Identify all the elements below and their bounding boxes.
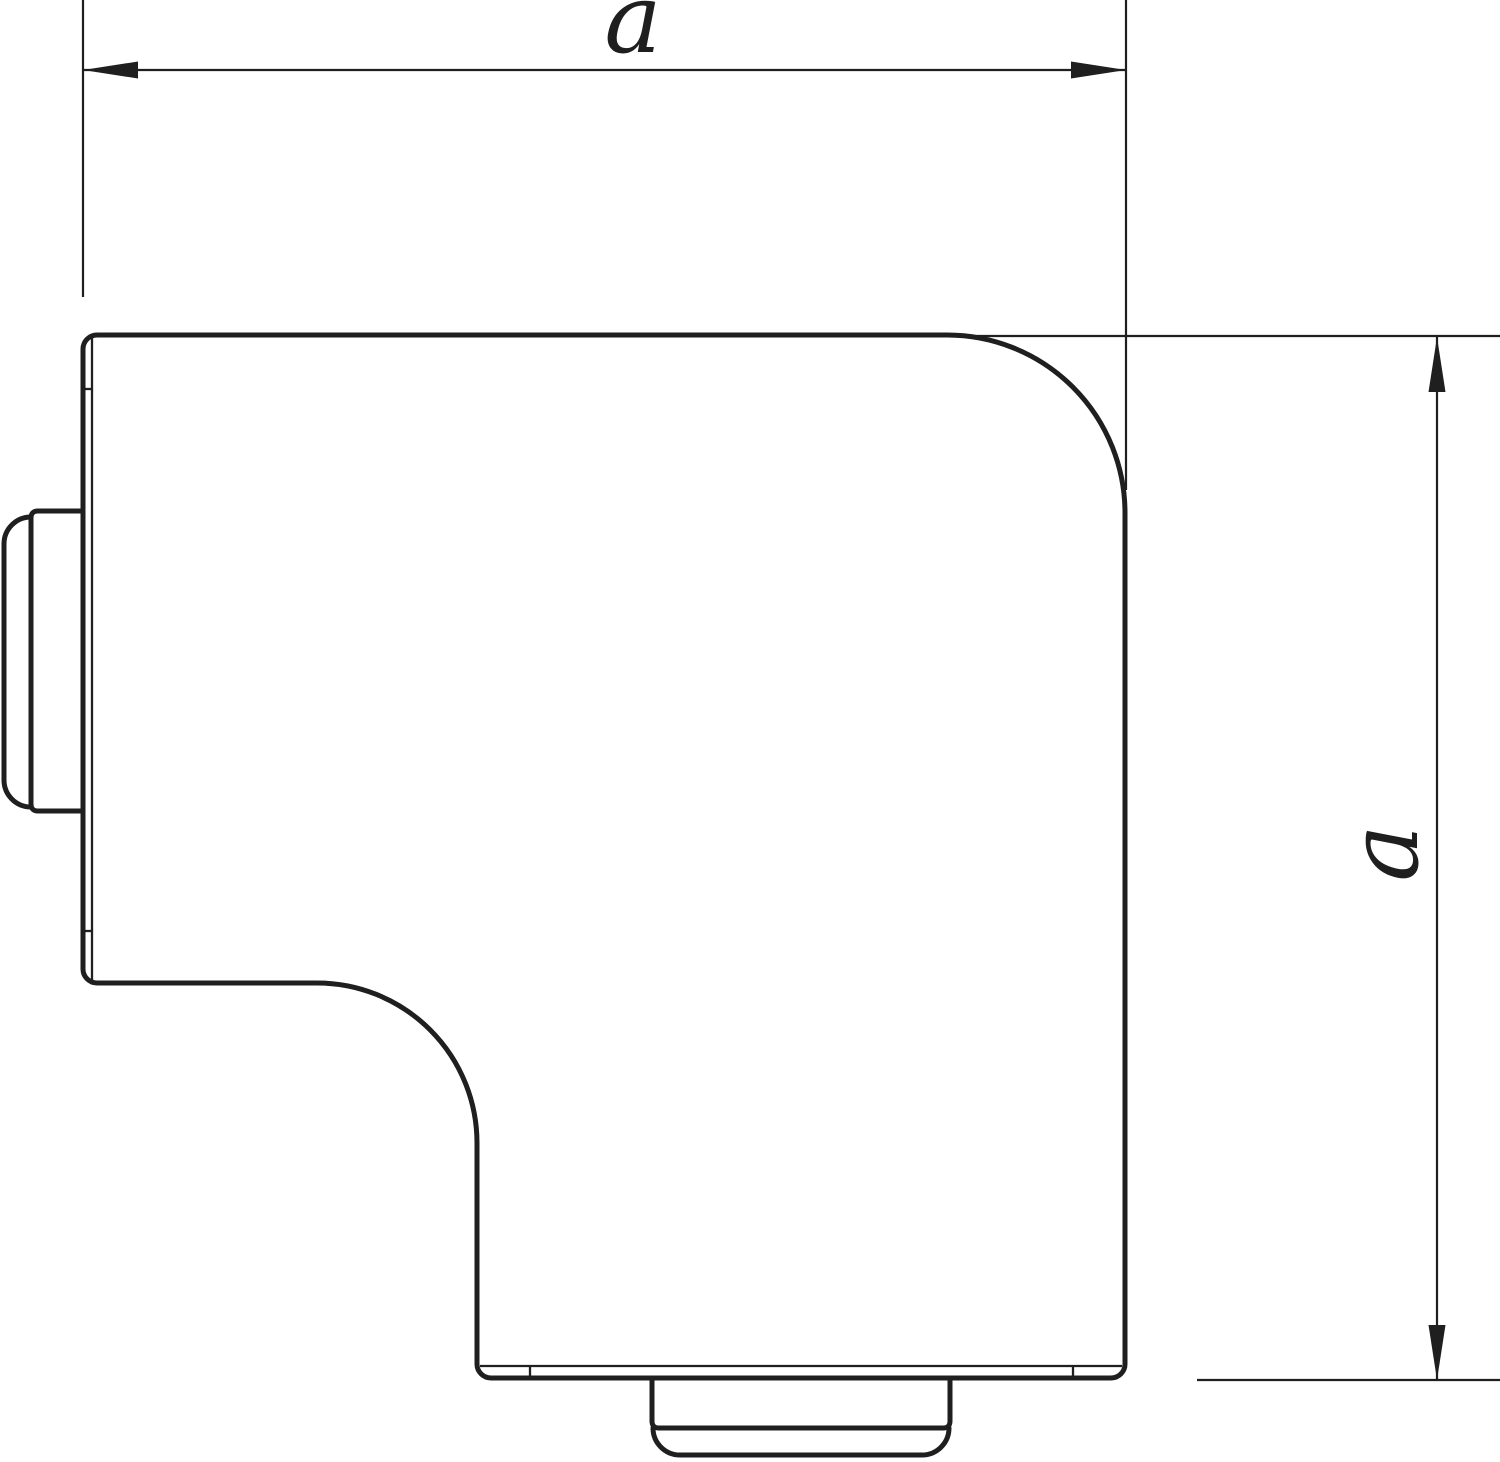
- drawing-canvas: a a: [0, 0, 1500, 1462]
- vertical-dimension-label: a: [1328, 824, 1440, 881]
- drawing-background: [0, 0, 1500, 1462]
- horizontal-dimension-label: a: [604, 0, 661, 75]
- flat-angle-technical-drawing: a a: [0, 0, 1500, 1462]
